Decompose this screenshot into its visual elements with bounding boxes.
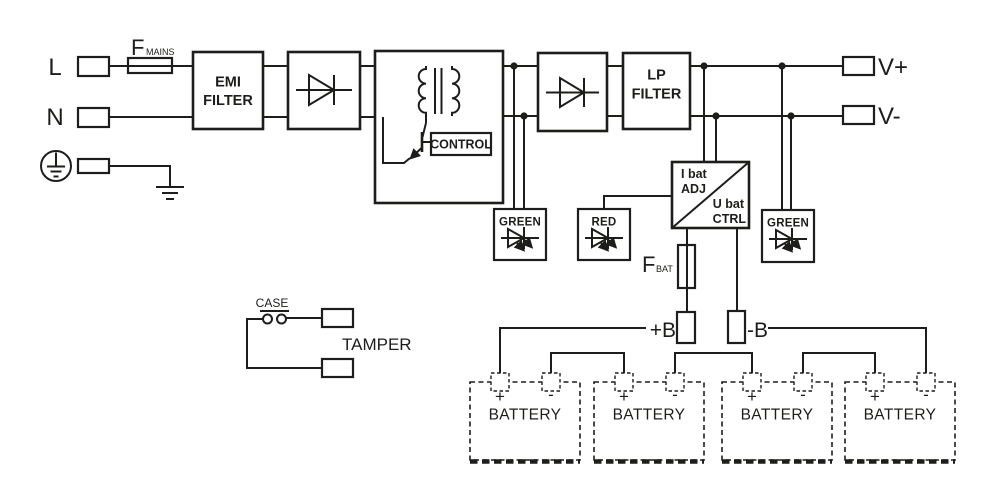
fuse-mains-label: F (131, 35, 144, 60)
case-label: CASE (256, 296, 289, 310)
ubat-label-2: CTRL (713, 212, 747, 226)
converter-box (375, 51, 503, 203)
psu-block-diagram: L N F MAINS EMI FILTER (0, 0, 996, 504)
ubat-label-1: U bat (713, 197, 745, 211)
emi-filter-label-1: EMI (215, 75, 241, 91)
lp-filter-label-2: FILTER (632, 87, 682, 103)
battery-terminals: F BAT +B -B (642, 245, 768, 343)
terminal-n-label: N (46, 104, 63, 131)
terminal-pe (78, 159, 109, 173)
emi-filter-box (193, 52, 263, 129)
ibat-label-2: ADJ (681, 182, 706, 196)
led-label: GREEN (499, 217, 541, 229)
terminal-b-minus (728, 311, 745, 343)
battery-label: BATTERY (489, 407, 562, 424)
plus-sign: + (870, 387, 880, 406)
plus-sign: + (747, 387, 757, 406)
lp-filter-label-1: LP (647, 68, 666, 84)
lp-filter-block: LP FILTER (623, 53, 690, 129)
diagram-canvas: L N F MAINS EMI FILTER (0, 0, 996, 504)
output-rectifier-block (538, 53, 607, 131)
battery-4: + - BATTERY (845, 373, 955, 462)
dc-outputs: V+ V- (843, 54, 908, 130)
minus-sign: - (800, 385, 806, 404)
b-plus-label: +B (650, 319, 676, 342)
battery-3: + - BATTERY (722, 373, 832, 462)
terminal-l (78, 57, 109, 76)
converter-block: CONTROL (375, 51, 503, 203)
plus-sign: + (619, 387, 629, 406)
tamper-label: TAMPER (342, 335, 412, 354)
minus-sign: - (672, 385, 678, 404)
plus-sign: + (495, 387, 505, 406)
v-minus-label: V- (878, 103, 901, 130)
battery-label: BATTERY (864, 407, 937, 424)
battery-1: + - BATTERY (470, 373, 580, 462)
fuse-bat-subscript: BAT (656, 264, 673, 274)
bat-ctrl-block: I bat ADJ U bat CTRL (672, 162, 749, 228)
ibat-label-1: I bat (681, 167, 708, 181)
led-green-output: GREEN (762, 210, 814, 262)
tamper-switch-icon (260, 311, 289, 324)
minus-sign: - (923, 385, 929, 404)
battery-label: BATTERY (613, 407, 686, 424)
led-green-converter: GREEN (494, 209, 546, 260)
terminal-n (78, 108, 109, 127)
tamper-terminal-top (322, 309, 353, 327)
terminal-l-label: L (48, 54, 61, 81)
tamper-circuit: CASE TAMPER (256, 296, 412, 377)
led-label: GREEN (767, 218, 809, 230)
emi-filter-block: EMI FILTER (193, 52, 263, 129)
minus-sign: - (548, 385, 554, 404)
fuse-bat-label: F (642, 252, 655, 277)
b-minus-label: -B (747, 319, 768, 342)
tamper-terminal-bottom (322, 359, 353, 377)
fuse-mains-subscript: MAINS (146, 47, 175, 57)
terminal-v-plus (843, 57, 874, 75)
terminal-v-minus (843, 106, 874, 124)
earth-ground-icon (156, 187, 184, 199)
terminal-b-plus (677, 312, 695, 343)
pe-symbol-icon (41, 151, 71, 181)
input-rectifier-block (288, 52, 360, 129)
led-label: RED (592, 217, 617, 229)
v-plus-label: V+ (878, 54, 908, 81)
battery-2: + - BATTERY (594, 373, 704, 462)
control-label: CONTROL (430, 138, 492, 152)
battery-label: BATTERY (741, 407, 814, 424)
led-red-battery: RED (578, 209, 630, 260)
emi-filter-label-2: FILTER (203, 93, 253, 109)
